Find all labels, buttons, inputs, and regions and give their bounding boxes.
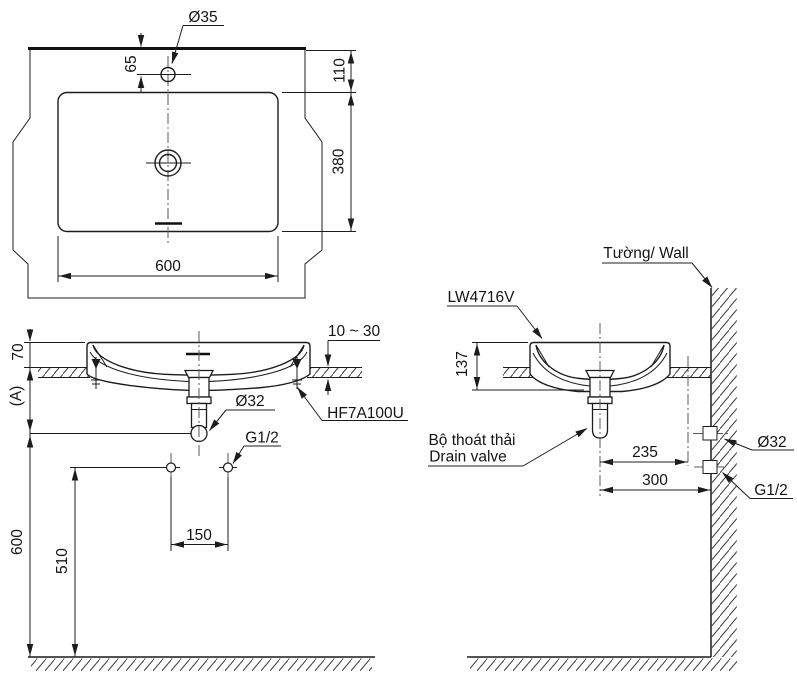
counter-hatch-right: [308, 368, 362, 378]
label-fixing-kit-code: HF7A100U: [327, 405, 404, 422]
label-drain-valve-vi: Bộ thoát thải: [428, 432, 515, 449]
front-view: 70 (A) 600 510 150 10 ~ 30 Ø32 G1/2 HF7A…: [8, 323, 408, 671]
lavatory-installation-drawing: 65 110 380 600 Ø35: [0, 0, 797, 684]
top-view: 65 110 380 600 Ø35: [13, 9, 356, 298]
label-model: LW4716V: [448, 289, 516, 306]
label-supply-thread: G1/2: [245, 430, 279, 447]
dim-drain-to-faucet-line: 235: [632, 444, 658, 461]
label-wall-outlet-dia: Ø32: [757, 434, 786, 451]
label-drain-pipe-dia: Ø32: [235, 393, 264, 410]
dim-supply-spacing: 150: [186, 527, 212, 544]
floor-hatch: [31, 659, 372, 672]
dim-basin-width: 600: [155, 258, 181, 275]
label-wall-supply-thread: G1/2: [754, 482, 788, 499]
counter-hatch-left: [38, 368, 90, 378]
dim-faucet-offset: 65: [123, 55, 140, 72]
label-wall: Tường/ Wall: [603, 245, 688, 262]
counter-hatch-side-left: [503, 368, 533, 378]
wall-supply-outlet: [703, 461, 717, 474]
dim-counter-thickness: 10 ~ 30: [328, 323, 381, 340]
dim-basin-height: 137: [454, 351, 471, 377]
wall-drain-outlet: [703, 427, 717, 441]
dim-drain-end-height: 600: [9, 529, 26, 555]
dim-supply-height: 510: [54, 548, 71, 574]
dim-drain-to-wall: 300: [642, 472, 668, 489]
dim-rim-above-counter: 70: [10, 343, 27, 361]
dim-basin-depth: 380: [331, 148, 348, 174]
floor-hatch-side: [470, 659, 737, 672]
dim-rim-to-back-edge: 110: [332, 58, 349, 83]
supply-holes: [162, 453, 237, 492]
technical-drawing-page: 65 110 380 600 Ø35: [0, 0, 797, 684]
label-drain-valve-en: Drain valve: [429, 449, 507, 466]
label-faucet-hole-dia: Ø35: [188, 9, 217, 26]
side-view: 137 235 300 Tường/ Wall LW4716V Bộ thoát…: [428, 245, 794, 671]
dim-reference-a: (A): [8, 386, 25, 407]
counter-back-edge: [28, 47, 306, 50]
